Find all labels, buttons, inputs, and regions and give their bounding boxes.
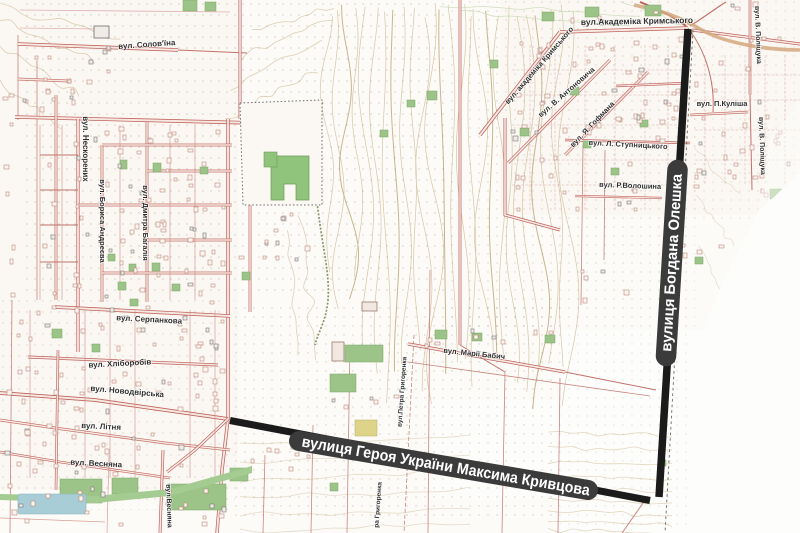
svg-text:вул.Академіка Кримського: вул.Академіка Кримського — [581, 15, 693, 27]
svg-text:вул. П.Куліша: вул. П.Куліша — [697, 99, 749, 108]
svg-text:вул. Бориса Андреєва: вул. Бориса Андреєва — [98, 179, 107, 263]
svg-text:вул. Дмитра Багалія: вул. Дмитра Багалія — [141, 185, 150, 261]
svg-text:вул. Нескорених: вул. Нескорених — [81, 116, 90, 182]
